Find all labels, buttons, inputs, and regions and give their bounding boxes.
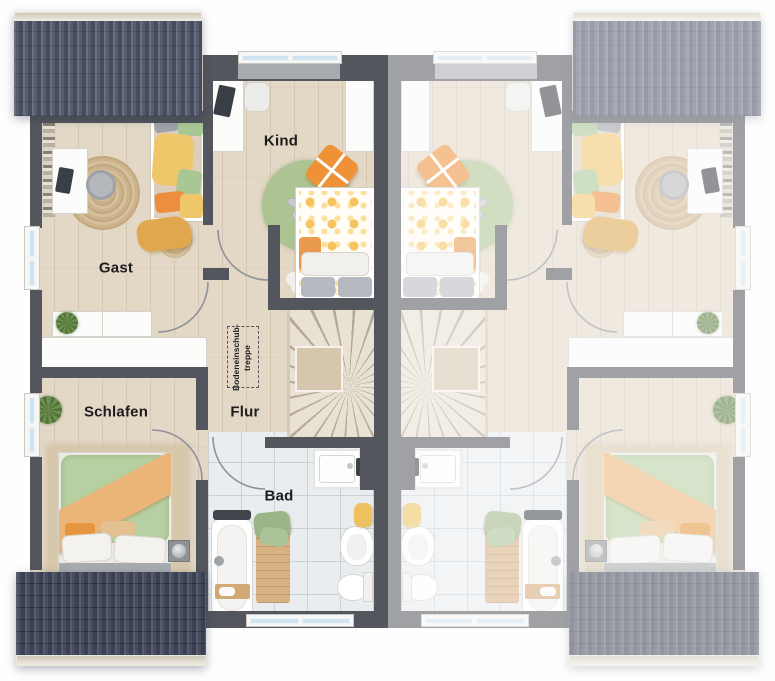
wall-schlafen-top (30, 367, 205, 378)
wall-left-outer (733, 457, 745, 570)
wall-stairs-bottom (265, 437, 374, 448)
wall-kind-bottom (272, 298, 374, 310)
gast-window (735, 226, 751, 290)
wall-bad-left (196, 367, 208, 430)
wall-gast-kind (562, 55, 572, 225)
gast-window (24, 226, 40, 290)
room-label-bad: Bad (265, 488, 294, 505)
schlafen-window (24, 393, 40, 457)
room-label-flur: Flur (230, 404, 259, 421)
room-label-schlafen: Schlafen (84, 404, 148, 421)
kind-window (238, 51, 342, 64)
wall-left-outer (30, 111, 42, 228)
unit-left: Bodeneinschub- treppe Gast Kind Schlafen… (0, 0, 388, 681)
wall-left-outer (733, 111, 745, 228)
roof-upper (14, 12, 202, 116)
schlafen-window (735, 393, 751, 457)
wall-schlafen-top (570, 367, 745, 378)
kind-window (433, 51, 537, 64)
floorplan-canvas: Bodeneinschub- treppe Gast Kind Schlafen… (0, 0, 775, 681)
roof-gutter (569, 655, 759, 666)
roof-gutter (16, 655, 206, 666)
wall-flur-stub (546, 268, 572, 280)
unit-right (387, 0, 775, 681)
wall-kind-bottom (401, 298, 503, 310)
roof-lower (569, 572, 759, 666)
attic-hatch: Bodeneinschub- treppe (227, 326, 259, 388)
wall-stairs-bottom (401, 437, 510, 448)
wall-left-outer (30, 457, 42, 570)
room-label-gast: Gast (99, 260, 133, 277)
wall-party (374, 55, 388, 628)
bad-window (246, 614, 354, 627)
wall-gast-kind (203, 55, 213, 225)
bad-window (421, 614, 529, 627)
roof-lower (16, 572, 206, 666)
wall-party (387, 55, 401, 628)
room-label-kind: Kind (264, 133, 298, 150)
wall-bad-left (567, 367, 579, 430)
wall-shower-pillar (360, 437, 374, 490)
roof-upper (573, 12, 761, 116)
wall-flur-stub (203, 268, 229, 280)
attic-hatch-label: Bodeneinschub- treppe (231, 325, 257, 391)
wall-shower-pillar (401, 437, 415, 490)
